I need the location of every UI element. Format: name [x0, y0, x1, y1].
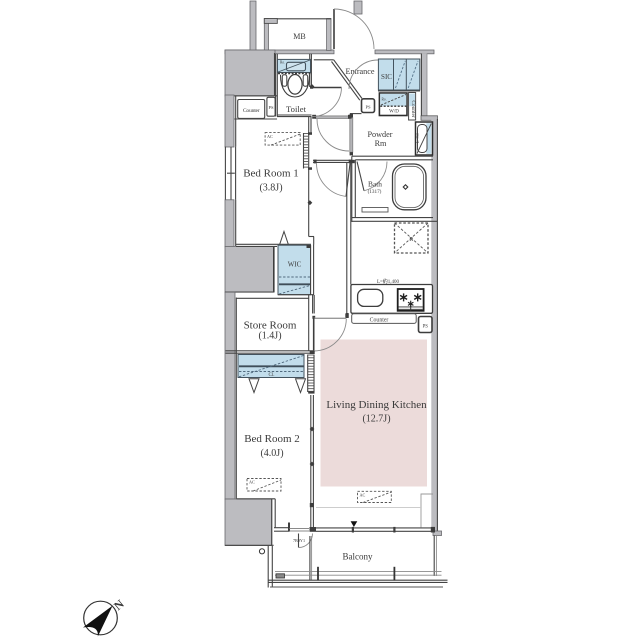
- svg-text:Rm: Rm: [375, 139, 387, 148]
- svg-text:L=750: L=750: [416, 133, 420, 143]
- svg-text:Bed Room 2: Bed Room 2: [244, 433, 300, 445]
- svg-text:WIC: WIC: [288, 261, 302, 269]
- svg-text:Counter: Counter: [370, 318, 389, 324]
- svg-text:(1317): (1317): [368, 188, 382, 195]
- svg-text:MB: MB: [293, 32, 305, 41]
- svg-text:AC: AC: [360, 492, 366, 497]
- svg-text:Toilet: Toilet: [286, 104, 307, 114]
- svg-text:SIC: SIC: [381, 73, 392, 81]
- svg-text:Balcony: Balcony: [343, 552, 373, 562]
- svg-text:(1.4J): (1.4J): [258, 331, 281, 342]
- svg-text:(3.8J): (3.8J): [259, 183, 282, 194]
- svg-text:Ro.: Ro.: [280, 61, 285, 65]
- svg-text:Bath: Bath: [368, 180, 382, 189]
- svg-text:AC: AC: [249, 480, 255, 485]
- svg-text:(12.7J): (12.7J): [362, 414, 390, 425]
- svg-text:Counter: Counter: [243, 108, 260, 114]
- svg-text:7B9Y1: 7B9Y1: [293, 538, 305, 543]
- svg-text:Bed Room 1: Bed Room 1: [243, 168, 299, 180]
- svg-text:Entrance: Entrance: [345, 67, 374, 76]
- svg-text:R: R: [409, 237, 413, 243]
- svg-text:(4.0J): (4.0J): [260, 448, 283, 459]
- svg-text:Cl.: Cl.: [269, 373, 275, 378]
- svg-text:W/D: W/D: [389, 109, 399, 114]
- svg-text:PS: PS: [365, 104, 371, 109]
- svg-text:Ro.: Ro.: [382, 98, 387, 102]
- svg-text:Powder: Powder: [367, 130, 392, 139]
- svg-text:Counter: Counter: [410, 100, 416, 118]
- svg-text:PS: PS: [423, 324, 429, 329]
- svg-text:AC: AC: [267, 134, 273, 139]
- svg-text:PS: PS: [268, 105, 274, 110]
- svg-text:Living Dining Kitchen: Living Dining Kitchen: [326, 399, 427, 411]
